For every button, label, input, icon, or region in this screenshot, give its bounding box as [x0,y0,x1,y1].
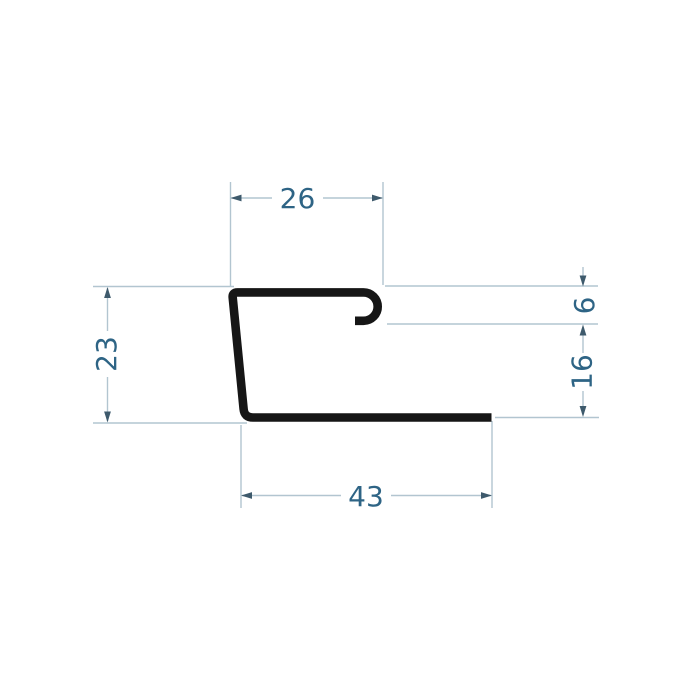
dimension-labels: 26 23 6 16 43 [90,182,601,513]
profile-outline [233,292,492,417]
arrow-16-up [580,325,587,336]
arrow-6-down [580,276,587,287]
dimension-arrows [104,195,586,499]
dim-label-right-height: 16 [566,354,599,390]
arrow-23-up [104,287,111,298]
technical-drawing: 26 23 6 16 43 [0,0,700,700]
dim-label-top-width: 26 [280,182,316,215]
dim-label-hook-depth: 6 [568,297,601,315]
arrow-43-left [241,492,252,499]
arrow-26-left [231,195,242,202]
dimension-lines [93,182,599,508]
drawing-canvas: 26 23 6 16 43 [0,0,700,700]
dim-label-bottom-width: 43 [348,480,384,513]
arrow-26-right [372,195,383,202]
arrow-16-down [580,406,587,417]
arrow-43-right [481,492,492,499]
arrow-23-down [104,412,111,423]
dim-label-left-height: 23 [90,336,123,372]
